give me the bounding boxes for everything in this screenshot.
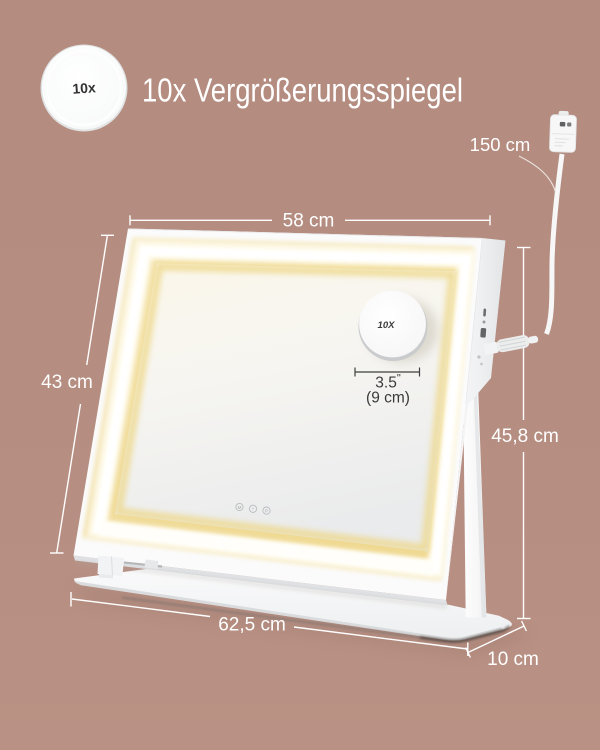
svg-text:(9 cm): (9 cm): [366, 390, 410, 407]
svg-text:*: *: [252, 507, 254, 512]
svg-text:62,5 cm: 62,5 cm: [218, 615, 286, 636]
svg-text:P: P: [265, 508, 268, 513]
svg-text:43 cm: 43 cm: [41, 372, 93, 393]
svg-text:150 cm: 150 cm: [470, 134, 531, 155]
svg-text:10 cm: 10 cm: [487, 649, 539, 670]
svg-text:M: M: [238, 505, 242, 510]
svg-text:10x: 10x: [72, 79, 97, 97]
svg-text:10x Vergrößerungsspiegel: 10x Vergrößerungsspiegel: [142, 72, 463, 109]
svg-text:45,8 cm: 45,8 cm: [491, 426, 559, 447]
svg-text:10X: 10X: [378, 320, 396, 331]
svg-text:58 cm: 58 cm: [283, 211, 335, 232]
